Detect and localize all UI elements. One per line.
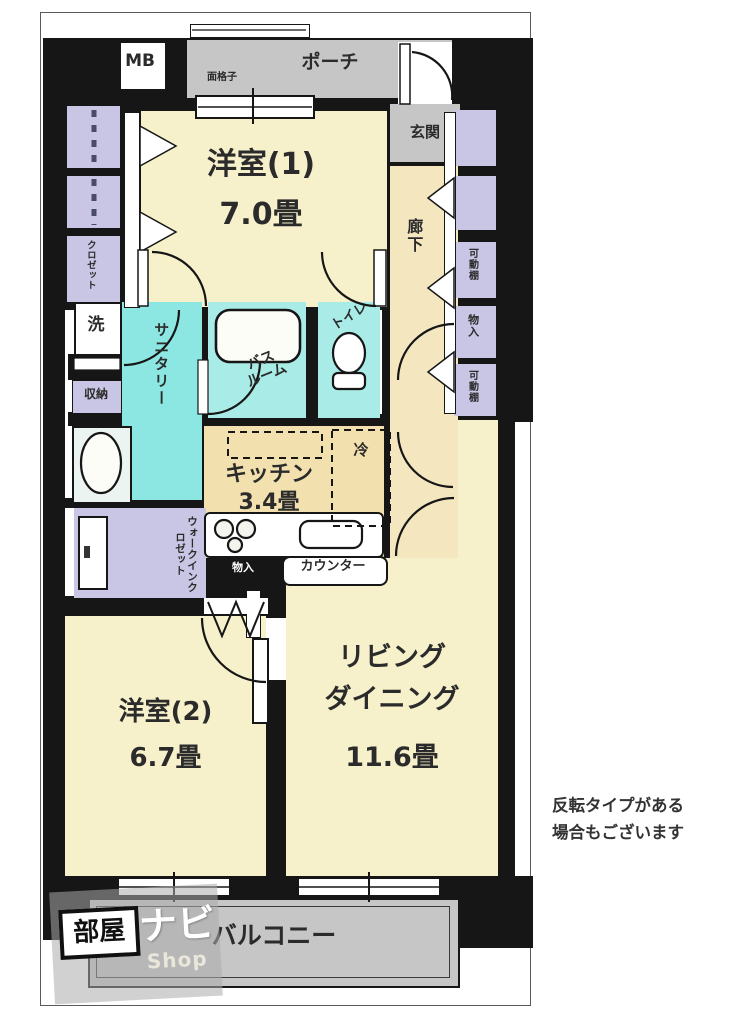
wall-segment [43,110,65,880]
left-closet-1 [67,106,120,168]
corridor-label: 廊下 [404,218,422,254]
ld-upper-arm [458,420,498,560]
wall-segment [452,876,533,948]
kitchen-size: 3.4畳 [204,490,334,515]
sanitary-label: サニタリー [152,322,169,407]
logo-navi-text: ナビ [137,892,216,951]
right-closet-2 [454,176,496,230]
logo-shop-text: Shop [146,946,208,973]
wall-segment [68,412,126,426]
counter-label: カウンター [282,560,384,575]
porch-label: ポーチ [270,52,390,74]
storage-left-label: 収納 [72,388,120,402]
basin-room [72,426,132,504]
room2-name: 洋室(2) [65,698,266,728]
ld-name-line2: ダイニング [286,684,498,715]
wic-label: ウォークインクロゼット [118,512,198,596]
kitchen-name: キッチン [204,462,334,487]
room1-size: 7.0畳 [138,198,384,233]
kitchen-storage-label: 物入 [218,562,268,575]
laundry-label: 洗 [74,316,118,336]
right-closet-1 [454,110,496,166]
movable-shelf-label-2: 可動棚 [466,370,478,403]
kitchen-counter [204,512,384,558]
left-closet-2 [67,176,120,228]
wall-segment [306,304,318,418]
room2-ld-door-gap [266,618,286,680]
fridge-label: 冷 [346,442,376,459]
entrance-label: 玄関 [390,124,460,141]
closet-label: クロゼット [84,240,95,290]
logo-heya-box: 部屋 [58,906,141,960]
room1-name: 洋室(1) [138,148,384,183]
living-dining-area [286,558,498,876]
grille-label: 面格子 [192,72,252,84]
wic-door [78,516,108,590]
ld-size: 11.6畳 [286,742,498,773]
note-line2: 場合もございます [552,819,742,846]
mb-label: MB [118,52,162,72]
wall-segment [498,110,533,422]
floor-plan: MB ポーチ 面格子 玄関 洋室(1) 7.0畳 廊下 可動棚 物入 可動棚 ク… [0,0,747,1024]
storage-right-label: 物入 [466,314,479,338]
entrance-door-gap [398,42,452,104]
wall-segment [68,354,126,380]
logo-heya-text: 部屋 [62,910,136,954]
movable-shelf-label-1: 可動棚 [466,248,478,281]
corridor-door-strip [444,112,456,414]
wic-door-handle [84,546,90,558]
mirror-note: 反転タイプがある 場合もございます [552,792,742,846]
ld-name-line1: リビング [286,642,498,673]
heya-navi-shop-logo: 部屋 ナビ Shop [49,884,223,1005]
wall-segment [498,420,515,878]
note-line1: 反転タイプがある [552,792,742,819]
room2-size: 6.7畳 [65,744,266,774]
porch-top-opening [190,24,310,38]
room2-top-door-gap [204,598,268,614]
